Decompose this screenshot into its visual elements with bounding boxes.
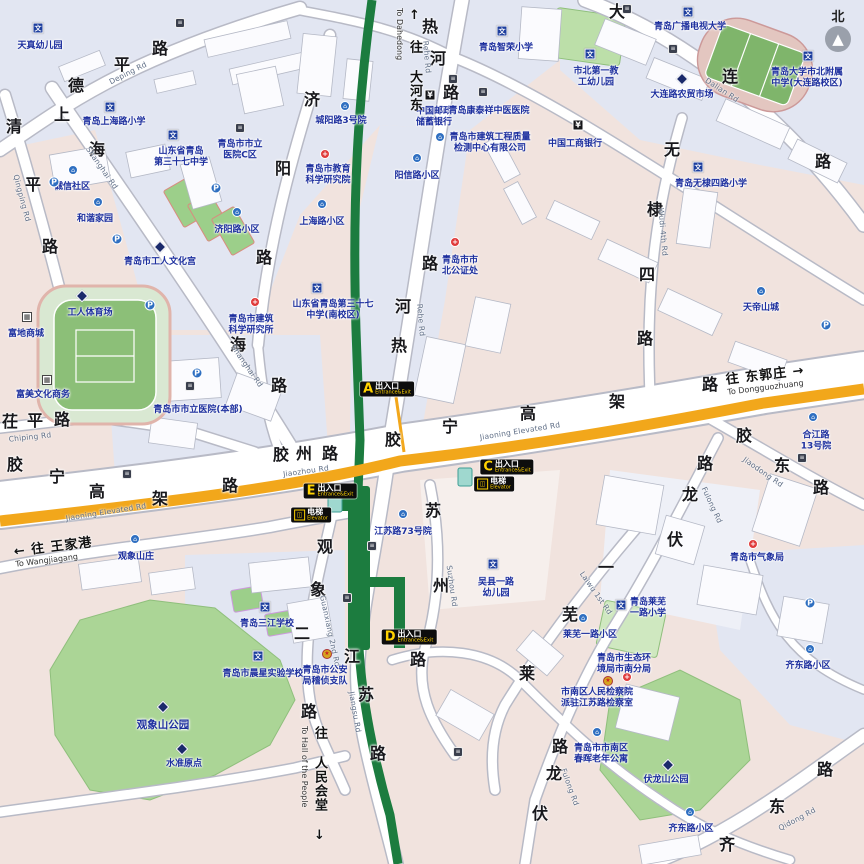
dark-poi-icon[interactable]: ≡ <box>622 4 632 14</box>
road-name-char: 清 <box>6 113 22 137</box>
poi-label: 青岛康泰祥中医医院 <box>448 106 529 117</box>
road-name-char: 路 <box>42 233 58 257</box>
diamond-poi-icon[interactable] <box>662 759 675 772</box>
poi-label: 青岛市气象局 <box>730 553 784 564</box>
road-name-char: 路 <box>370 740 386 764</box>
circle-poi-icon[interactable]: ⌂ <box>808 412 818 422</box>
road-name-char: 路 <box>815 148 831 172</box>
exit-label-en: Entrance&Exit <box>495 469 531 474</box>
road-name-char: 东 <box>769 793 785 817</box>
road-name-en: Chiping Rd <box>8 430 52 443</box>
dark-poi-icon[interactable]: ≡ <box>122 469 132 479</box>
road-name-char: 江 <box>344 643 360 667</box>
parking-icon[interactable]: P <box>821 320 832 331</box>
bld-poi-icon[interactable]: ▦ <box>42 375 52 385</box>
road-name-char: 东 <box>774 452 790 476</box>
diamond-poi-icon[interactable] <box>154 241 167 254</box>
exit-letter: E <box>307 485 316 498</box>
circle-poi-icon[interactable]: ⌂ <box>685 807 695 817</box>
road-name-en: Jiaoning Elevated Rd <box>65 501 147 523</box>
red-poi-icon[interactable]: + <box>748 539 758 549</box>
road-name-char: 伏 <box>667 526 683 550</box>
dark-poi-icon[interactable]: ≡ <box>175 18 185 28</box>
school-icon[interactable]: 文 <box>260 602 271 613</box>
road-name-char: 河 <box>430 45 446 69</box>
school-icon[interactable]: 文 <box>693 162 704 173</box>
road-name-char: 热 <box>391 332 407 356</box>
police-poi-icon[interactable]: ★ <box>603 676 613 686</box>
road-name-en: Suzhou Rd <box>445 565 460 608</box>
poi-label: 青岛莱芜一路小学 <box>630 598 666 619</box>
road-name-en: Jiaozhou Rd <box>283 463 330 478</box>
road-name-char: 上 <box>54 101 70 125</box>
school-icon[interactable]: 文 <box>253 651 264 662</box>
circle-poi-icon[interactable]: ⌂ <box>68 165 78 175</box>
diamond-poi-icon[interactable] <box>157 701 170 714</box>
road-name-char: 胶 <box>273 441 289 465</box>
exit-letter: D <box>385 631 396 644</box>
poi-label: 大连路农贸市场 <box>650 90 713 101</box>
compass-north-label: 北 <box>822 6 854 25</box>
poi-label: 青岛市建筑科学研究所 <box>228 315 273 336</box>
diamond-poi-icon[interactable] <box>76 290 89 303</box>
poi-label: 天帝山城 <box>743 303 779 314</box>
poi-label: 青岛市公安局稽侦支队 <box>302 666 347 687</box>
parking-icon[interactable]: P <box>805 598 816 609</box>
compass: 北 ▲ <box>822 6 854 52</box>
poi-label: 青岛上海路小学 <box>82 117 145 128</box>
to-wangjiagang: ← 往 王家港To Wangjiagang <box>13 531 95 568</box>
elevator-badge[interactable]: ◫电梯Elevator <box>291 508 331 523</box>
road-name-char: 河 <box>395 293 411 317</box>
parking-icon[interactable]: P <box>49 177 60 188</box>
bld-poi-icon[interactable]: ▦ <box>22 312 32 322</box>
exit-c-badge[interactable]: C出入口Entrance&Exit <box>480 460 533 475</box>
poi-label: 青岛市生态环境局市南分局 <box>597 654 651 675</box>
poi-label: 吴县一路幼儿园 <box>478 578 514 599</box>
dark-poi-icon[interactable]: ≡ <box>797 453 807 463</box>
poi-label: 诚信社区 <box>54 182 90 193</box>
circle-poi-icon[interactable]: ⌂ <box>93 197 103 207</box>
road-name-char: 伏 <box>532 800 548 824</box>
exit-label-en: Entrance&Exit <box>398 639 434 644</box>
poi-label: 中国工商银行 <box>548 139 602 150</box>
exit-d-badge[interactable]: D出入口Entrance&Exit <box>382 630 437 645</box>
dark-poi-icon[interactable]: ≡ <box>668 44 678 54</box>
road-name-char: 平 <box>25 171 41 195</box>
poi-label: 青岛市市立医院(本部) <box>153 405 242 416</box>
road-name-char: 宁 <box>442 413 458 437</box>
road-name-char: 莱 <box>519 660 535 684</box>
poi-label: 青岛市工人文化宫 <box>124 257 196 268</box>
poi-label: 青岛三江学校 <box>240 619 294 630</box>
yen-poi-icon[interactable]: ¥ <box>425 90 436 101</box>
poi-label: 合江路13号院 <box>801 431 832 452</box>
exit-label-en: Entrance&Exit <box>375 391 411 396</box>
road-name-en: Fulong Rd <box>700 485 725 524</box>
road-name-char: 路 <box>552 733 568 757</box>
road-name-char: 一 <box>598 554 614 578</box>
poi-label: 富地商城 <box>8 329 44 340</box>
road-name-char: 路 <box>54 406 70 430</box>
elevator-icon: ◫ <box>294 510 305 521</box>
poi-label: 青岛市市南区春晖老年公寓 <box>574 744 628 765</box>
parking-icon[interactable]: P <box>192 368 203 379</box>
dark-poi-icon[interactable]: ≡ <box>367 541 377 551</box>
poi-label: 青岛市晨星实验学校 <box>222 669 303 680</box>
diamond-poi-icon[interactable] <box>676 73 689 86</box>
school-icon[interactable]: 文 <box>312 283 323 294</box>
road-name-char: 苏 <box>425 497 441 521</box>
diamond-poi-icon[interactable] <box>176 743 189 756</box>
road-name-char: 平 <box>27 407 43 431</box>
poi-label: 青岛无棣四路小学 <box>675 179 747 190</box>
school-icon[interactable]: 文 <box>33 23 44 34</box>
road-name-char: 路 <box>271 372 287 396</box>
circle-poi-icon[interactable]: ⌂ <box>398 509 408 519</box>
road-name-char: 观 <box>317 533 333 557</box>
poi-label: 青岛市教育科学研究院 <box>305 165 350 186</box>
exit-label-en: Entrance&Exit <box>318 493 354 498</box>
poi-label: 天真幼儿园 <box>17 41 62 52</box>
road-name-char: 济 <box>304 86 320 110</box>
map-label-layer: 德平路清平路上海海路济阳路热河路路河热大连路无棣四路胶宁高架路胶宁高架路胶州路茌… <box>0 0 864 864</box>
road-name-char: 路 <box>697 450 713 474</box>
exit-letter: C <box>483 461 493 474</box>
road-name-char: 路 <box>637 325 653 349</box>
poi-label: 和谐家园 <box>77 214 113 225</box>
poi-label: 青岛市市立医院C区 <box>217 140 262 161</box>
road-name-char: 二 <box>294 620 310 644</box>
exit-e-badge[interactable]: E出入口Entrance&Exit <box>304 484 357 499</box>
poi-label: 水准原点 <box>166 759 202 770</box>
circle-poi-icon[interactable]: ⌂ <box>756 286 766 296</box>
school-icon[interactable]: 文 <box>683 7 694 18</box>
road-name-char: 高 <box>520 400 536 424</box>
road-name-en: Rehe Rd <box>415 303 427 336</box>
elevator-badge[interactable]: ◫电梯Elevator <box>474 477 514 492</box>
station-area-map: 德平路清平路上海海路济阳路热河路路河热大连路无棣四路胶宁高架路胶宁高架路胶州路茌… <box>0 0 864 864</box>
poi-label: 工人体育场 <box>67 308 112 319</box>
dark-poi-icon[interactable]: ≡ <box>453 747 463 757</box>
road-name-char: 路 <box>222 472 238 496</box>
poi-label: 山东省青岛第三十七中学(南校区) <box>292 300 373 321</box>
road-name-char: 路 <box>322 440 338 464</box>
elevator-label-en: Elevator <box>490 486 511 491</box>
dark-poi-icon[interactable]: ≡ <box>185 381 195 391</box>
circle-poi-icon[interactable]: ⌂ <box>317 199 327 209</box>
poi-label: 上海路小区 <box>299 217 344 228</box>
red-poi-icon[interactable]: + <box>320 149 330 159</box>
red-poi-icon[interactable]: + <box>450 237 460 247</box>
dark-poi-icon[interactable]: ≡ <box>448 74 458 84</box>
poi-label: 青岛智荣小学 <box>479 43 533 54</box>
to-hall-of-the-people: To Hall of the People往 人民会堂 ↓ <box>300 726 329 844</box>
poi-label: 阳信路小区 <box>394 171 439 182</box>
road-name-char: 连 <box>722 63 738 87</box>
road-name-char: 架 <box>152 485 168 509</box>
red-poi-icon[interactable]: + <box>250 297 260 307</box>
road-name-en: Shanghai Rd <box>229 343 265 389</box>
poi-label: 江苏路73号院 <box>374 527 432 538</box>
school-icon[interactable]: 文 <box>616 600 627 611</box>
road-name-char: 芜 <box>562 601 578 625</box>
poi-label: 观象山公园 <box>137 720 190 731</box>
dark-poi-icon[interactable]: ≡ <box>235 123 245 133</box>
road-name-en: Fulong Rd <box>559 767 581 807</box>
road-name-char: 路 <box>422 250 438 274</box>
poi-label: 市北第一教工幼儿园 <box>573 67 618 88</box>
road-name-char: 无 <box>664 136 680 160</box>
compass-north-icon: ▲ <box>825 26 851 52</box>
road-name-char: 热 <box>422 13 438 37</box>
road-name-char: 胶 <box>385 426 401 450</box>
poi-label: 伏龙山公园 <box>643 775 688 786</box>
poi-label: 青岛市市北公证处 <box>442 256 478 277</box>
elevator-label-en: Elevator <box>307 517 328 522</box>
road-name-en: Wudi 4th Rd <box>656 208 669 257</box>
poi-label: 富美文化商务 <box>16 390 70 401</box>
poi-label: 青岛广播电视大学 <box>654 22 726 33</box>
road-name-char: 阳 <box>275 155 291 179</box>
road-name-char: 胶 <box>7 451 23 475</box>
road-name-char: 苏 <box>358 681 374 705</box>
circle-poi-icon[interactable]: ⌂ <box>592 727 602 737</box>
road-name-char: 路 <box>301 698 317 722</box>
circle-poi-icon[interactable]: ⌂ <box>412 153 422 163</box>
police-poi-icon[interactable]: ★ <box>322 649 332 659</box>
road-name-char: 路 <box>152 35 168 59</box>
parking-icon[interactable]: P <box>211 183 222 194</box>
exit-a-badge[interactable]: A出入口Entrance&Exit <box>360 382 414 397</box>
poi-label: 济阳路小区 <box>214 225 259 236</box>
parking-icon[interactable]: P <box>112 234 123 245</box>
yen-poi-icon[interactable]: ¥ <box>573 120 584 131</box>
road-name-char: 茌 <box>2 408 18 432</box>
road-name-char: 路 <box>813 474 829 498</box>
school-icon[interactable]: 文 <box>168 130 179 141</box>
poi-label: 莱芜一路小区 <box>563 630 617 641</box>
exit-letter: A <box>363 383 373 396</box>
poi-label: 山东省青岛第三十七中学 <box>154 147 208 168</box>
road-name-char: 路 <box>410 646 426 670</box>
elevator-icon: ◫ <box>477 479 488 490</box>
school-icon[interactable]: 文 <box>585 49 596 60</box>
road-name-char: 州 <box>296 440 312 464</box>
road-name-char: 四 <box>639 261 655 285</box>
parking-icon[interactable]: P <box>145 300 156 311</box>
poi-label: 观象山庄 <box>118 552 154 563</box>
poi-label: 齐东路小区 <box>668 824 713 835</box>
road-name-char: 路 <box>702 371 718 395</box>
road-name-char: 路 <box>256 244 272 268</box>
poi-label: 青岛市建筑工程质量检测中心有限公司 <box>449 133 530 154</box>
road-name-char: 德 <box>68 72 84 96</box>
dark-poi-icon[interactable]: ≡ <box>478 87 488 97</box>
school-icon[interactable]: 文 <box>105 102 116 113</box>
dark-poi-icon[interactable]: ≡ <box>342 593 352 603</box>
poi-label: 青岛大学市北附属中学(大连路校区) <box>771 68 843 89</box>
circle-poi-icon[interactable]: ⌂ <box>435 132 445 142</box>
road-name-char: 高 <box>89 478 105 502</box>
road-name-char: 胶 <box>736 422 752 446</box>
poi-label: 城阳路3号院 <box>315 116 366 127</box>
road-name-char: 路 <box>817 756 833 780</box>
circle-poi-icon[interactable]: ⌂ <box>130 534 140 544</box>
road-name-char: 宁 <box>49 463 65 487</box>
to-dongguozhuang: 往 东郭庄 →To Dongguozhuang <box>725 359 807 396</box>
circle-poi-icon[interactable]: ⌂ <box>805 644 815 654</box>
school-icon[interactable]: 文 <box>497 26 508 37</box>
poi-label: 齐东路小区 <box>785 661 830 672</box>
school-icon[interactable]: 文 <box>488 559 499 570</box>
poi-label: 市南区人民检察院派驻江苏路检察室 <box>561 688 633 709</box>
circle-poi-icon[interactable]: ⌂ <box>232 207 242 217</box>
school-icon[interactable]: 文 <box>803 51 814 62</box>
road-name-char: 架 <box>609 388 625 412</box>
road-name-char: 齐 <box>719 831 735 855</box>
circle-poi-icon[interactable]: ⌂ <box>578 613 588 623</box>
road-name-char: 龙 <box>682 481 698 505</box>
to-dahedong: To Dahedong↑ 往 大河东 <box>395 8 424 112</box>
circle-poi-icon[interactable]: ⌂ <box>340 101 350 111</box>
